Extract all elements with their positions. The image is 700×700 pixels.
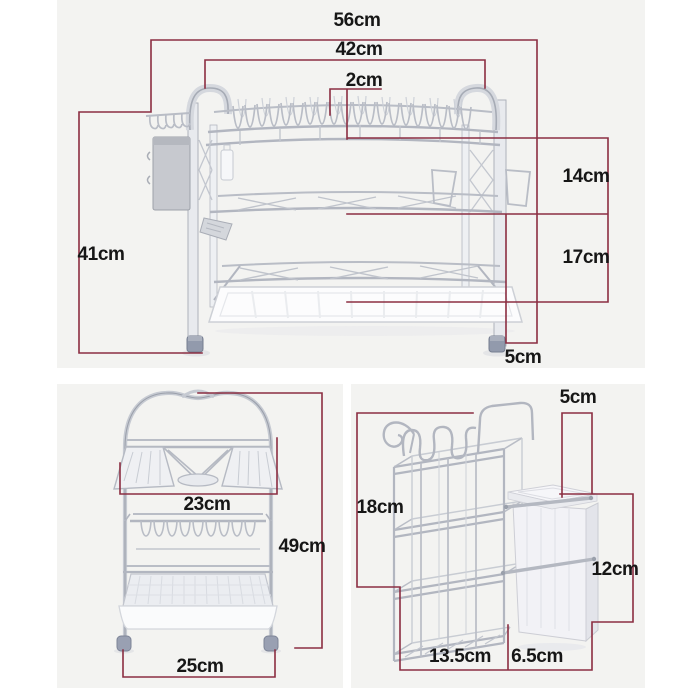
- dim-label-inner-width: 42cm: [336, 40, 383, 59]
- dim-label-handle-overhang: 5cm: [505, 348, 542, 367]
- dim-label-total-width: 56cm: [334, 11, 381, 30]
- accessory-illustration: [384, 403, 598, 661]
- front-view-illustration: [146, 88, 530, 357]
- dim-label-upper-tier-gap: 14cm: [563, 167, 610, 186]
- rack-illustrations: [0, 0, 700, 700]
- dim-label-box-height: 12cm: [592, 560, 639, 579]
- dim-label-side-height: 49cm: [279, 537, 326, 556]
- dim-label-top-depth: 23cm: [184, 495, 231, 514]
- dim-label-holder-height: 18cm: [357, 498, 404, 517]
- dim-label-box-width: 6.5cm: [511, 647, 563, 666]
- dim-label-height: 41cm: [78, 245, 125, 264]
- dim-label-slot-spacing: 2cm: [346, 71, 383, 90]
- product-dimension-diagram: 56cm 42cm 2cm 41cm 14cm 17cm 5cm 23cm 49…: [0, 0, 700, 700]
- dim-label-hook-width: 5cm: [560, 388, 597, 407]
- dim-label-basket-width: 13.5cm: [429, 647, 491, 666]
- side-view-illustration: [114, 391, 282, 654]
- dim-label-lower-tier-gap: 17cm: [563, 248, 610, 267]
- dim-label-base-depth: 25cm: [177, 657, 224, 676]
